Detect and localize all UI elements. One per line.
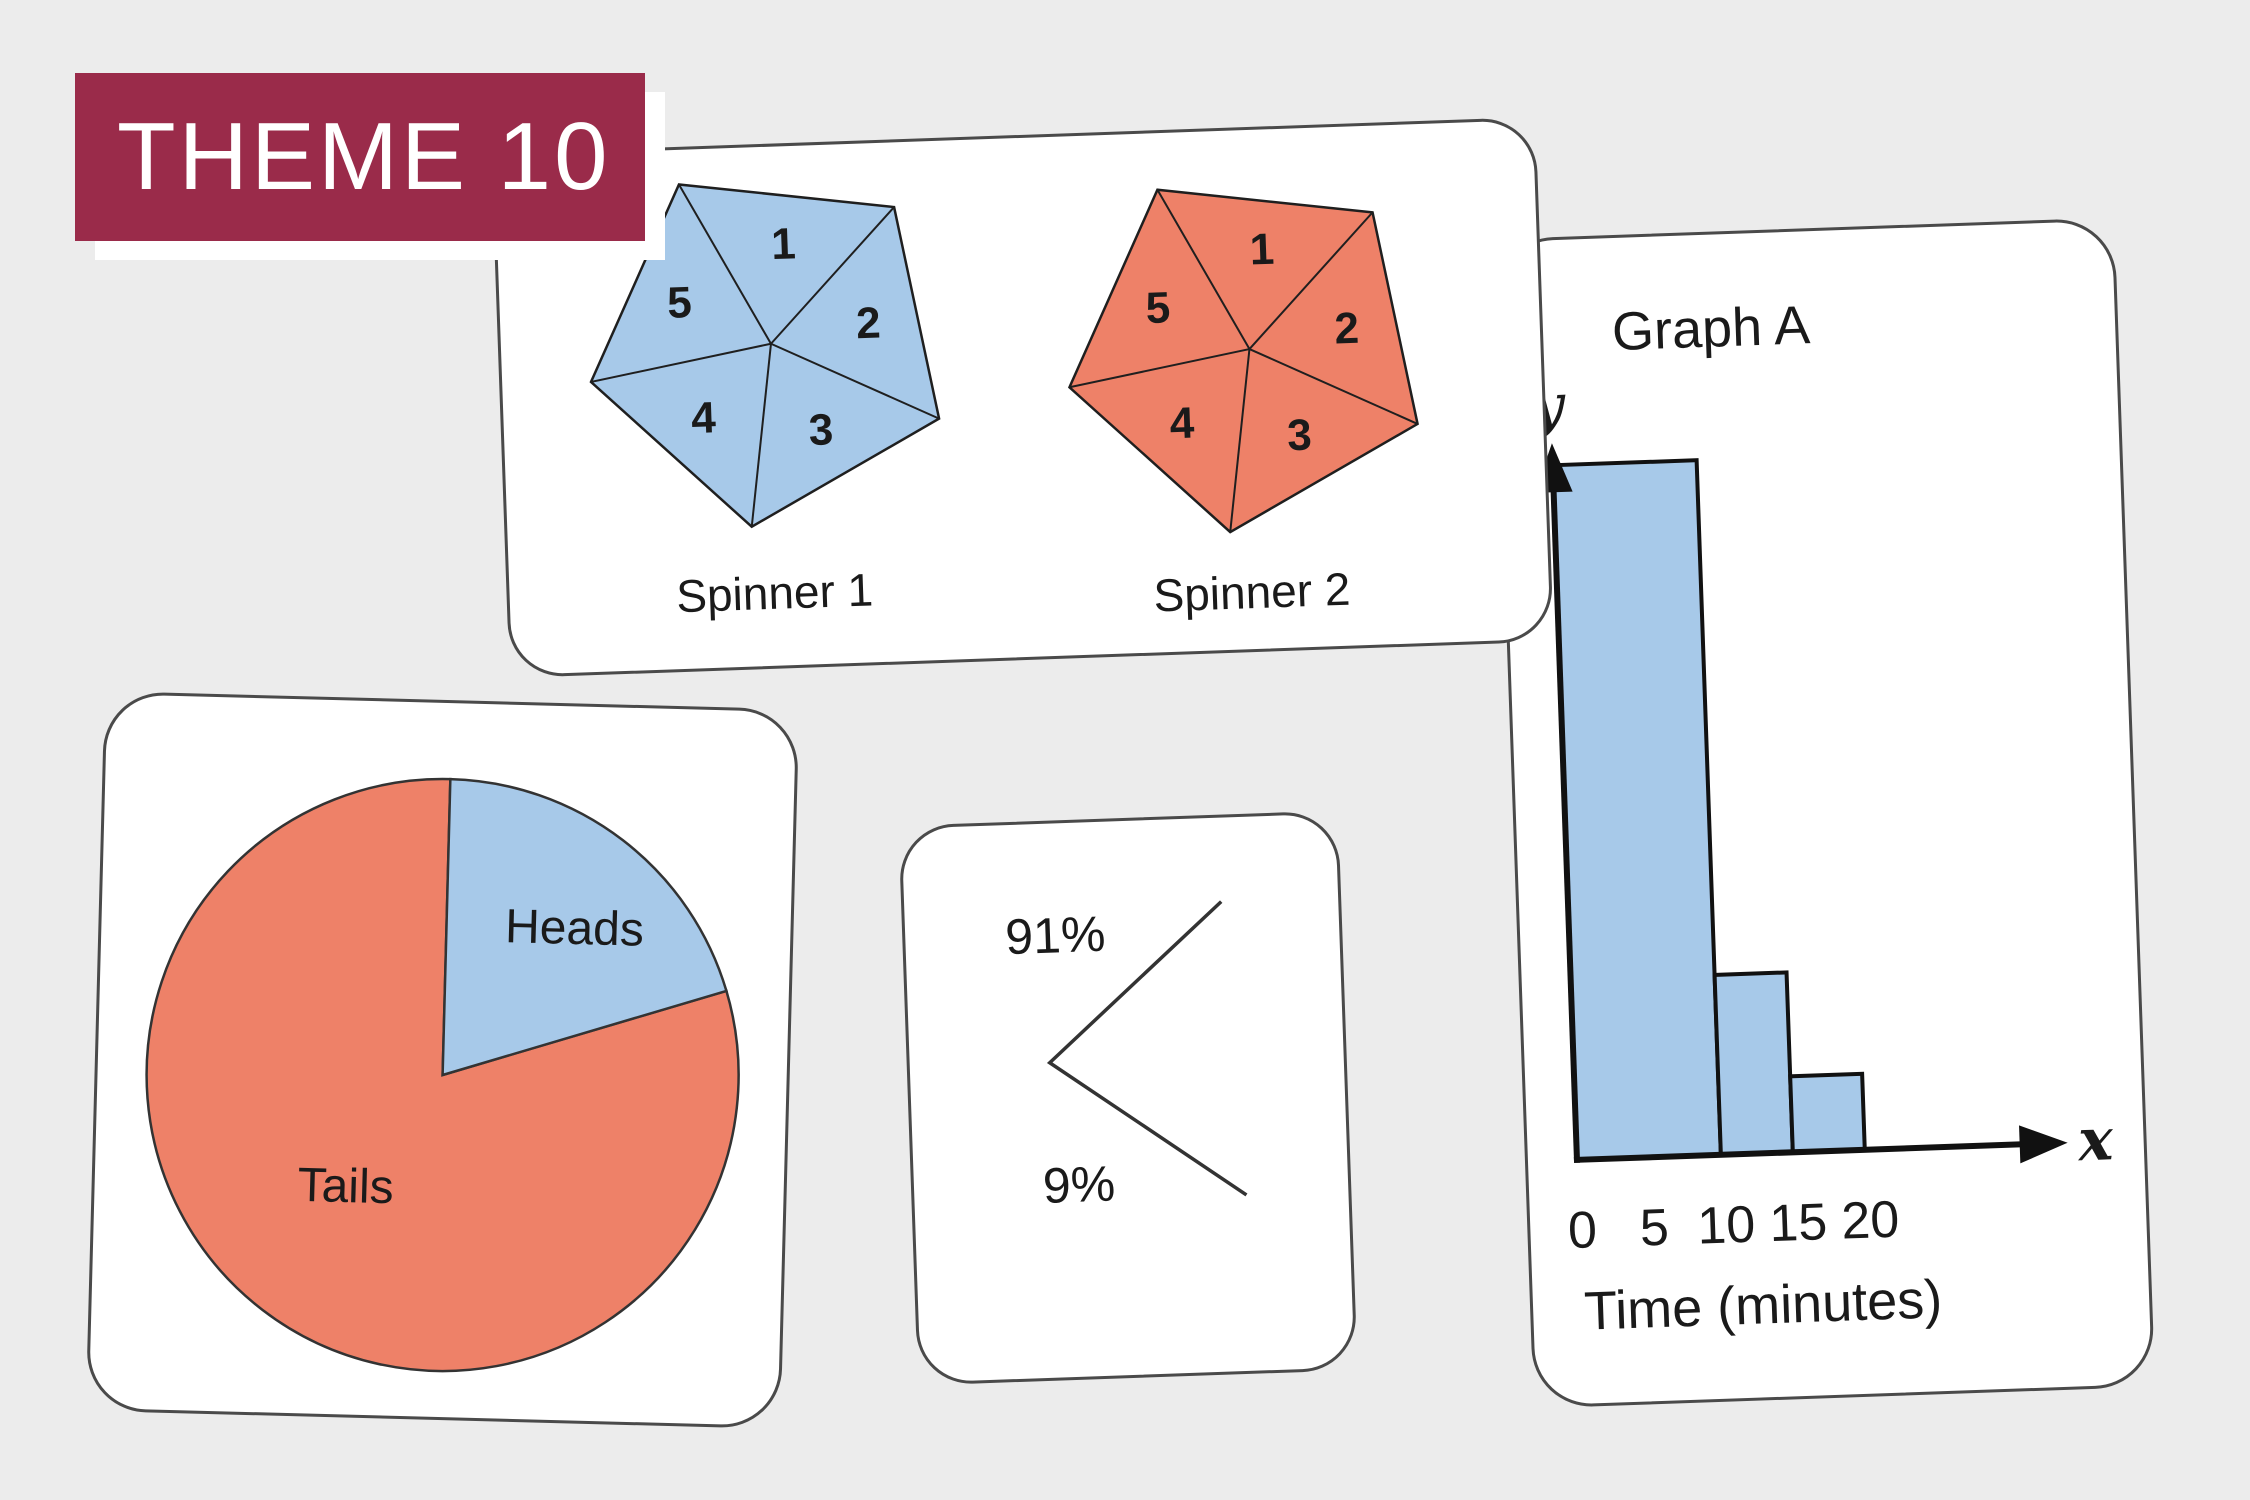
percent-branch-card: 91% 9%: [898, 810, 1357, 1385]
pie-label-tails: Tails: [297, 1159, 394, 1214]
graph-title: Graph A: [1611, 295, 1811, 362]
pie-chart: Heads Tails: [89, 694, 796, 1426]
spinner-1-sector-2: 2: [855, 298, 881, 348]
spinner-2-pentagon: [1063, 181, 1421, 537]
bar-15-20: [1790, 1074, 1865, 1152]
pie-chart-card: Heads Tails: [86, 691, 800, 1429]
spinner-2: 1 2 3 4 5 Spinner 2: [1063, 181, 1424, 624]
theme-banner: THEME 10: [75, 73, 645, 241]
worksheet-page: Graph A y x 0 5 10 15 20 Time (minutes): [0, 0, 2250, 1500]
x-axis-label: x: [2075, 1105, 2115, 1174]
spinner-2-sector-2: 2: [1334, 304, 1360, 354]
spinner-1-sector-1: 1: [770, 219, 796, 269]
upper-branch-percent: 91%: [1004, 906, 1106, 965]
spinner-2-sector-4: 4: [1169, 399, 1196, 449]
lower-branch-percent: 9%: [1042, 1156, 1116, 1214]
spinner-1-sector-5: 5: [666, 278, 692, 328]
spinner-1-label: Spinner 1: [675, 563, 874, 622]
spinner-2-sector-3: 3: [1286, 410, 1312, 460]
spinner-2-label: Spinner 2: [1153, 563, 1352, 622]
spinner-2-sector-5: 5: [1145, 283, 1171, 333]
pie-label-heads: Heads: [504, 900, 644, 957]
x-tick-0: 0: [1567, 1201, 1598, 1260]
x-axis-title: Time (minutes): [1583, 1269, 1943, 1341]
theme-banner-label: THEME 10: [75, 102, 610, 212]
x-tick-20: 20: [1840, 1191, 1900, 1251]
x-axis-arrow-icon: [2019, 1124, 2068, 1164]
bar-10-15: [1715, 972, 1793, 1154]
spinner-2-sector-1: 1: [1249, 225, 1275, 275]
spinner-1-sector-4: 4: [690, 393, 717, 443]
spinner-1-sector-3: 3: [808, 405, 834, 455]
probability-branches: 91% 9%: [901, 814, 1354, 1383]
x-tick-10: 10: [1696, 1196, 1756, 1256]
bar-chart: Graph A y x 0 5 10 15 20 Time (minutes): [1496, 221, 2152, 1406]
x-tick-15: 15: [1768, 1193, 1828, 1253]
graph-a-card: Graph A y x 0 5 10 15 20 Time (minutes): [1493, 218, 2155, 1409]
bar-0-10: [1553, 460, 1721, 1160]
x-tick-5: 5: [1639, 1199, 1670, 1258]
